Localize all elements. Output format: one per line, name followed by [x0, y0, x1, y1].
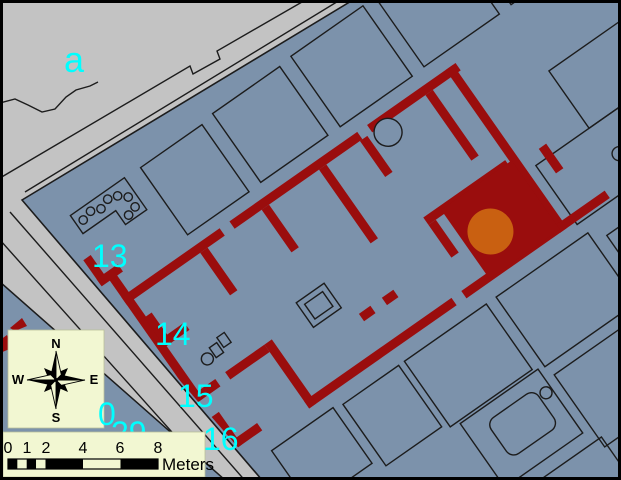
compass-rose-legend: N S W E [8, 330, 104, 428]
scale-tick-0: 0 [4, 440, 13, 457]
scale-tick-2: 2 [42, 440, 51, 457]
entrance-label-16: 16 [203, 421, 239, 457]
compass-letter-w: W [12, 372, 25, 387]
compass-letter-e: E [90, 372, 99, 387]
street-label-a: a [64, 39, 85, 80]
scale-bar-legend: 0 1 2 4 6 8 Meters [3, 432, 214, 477]
scale-tick-1: 1 [23, 440, 32, 457]
map-canvas: a 13 14 15 16 N S W [0, 0, 621, 480]
scale-unit-label: Meters [162, 455, 214, 474]
compass-letter-s: S [52, 410, 61, 425]
entrance-label-15: 15 [178, 378, 214, 414]
entrance-label-14: 14 [155, 316, 191, 352]
entrance-label-13: 13 [92, 238, 128, 274]
compass-letter-n: N [51, 336, 60, 351]
site-plan-map: a 13 14 15 16 N S W [0, 0, 621, 480]
scale-tick-6: 6 [116, 440, 125, 457]
scale-tick-4: 4 [79, 440, 88, 457]
scale-bar [8, 459, 158, 469]
